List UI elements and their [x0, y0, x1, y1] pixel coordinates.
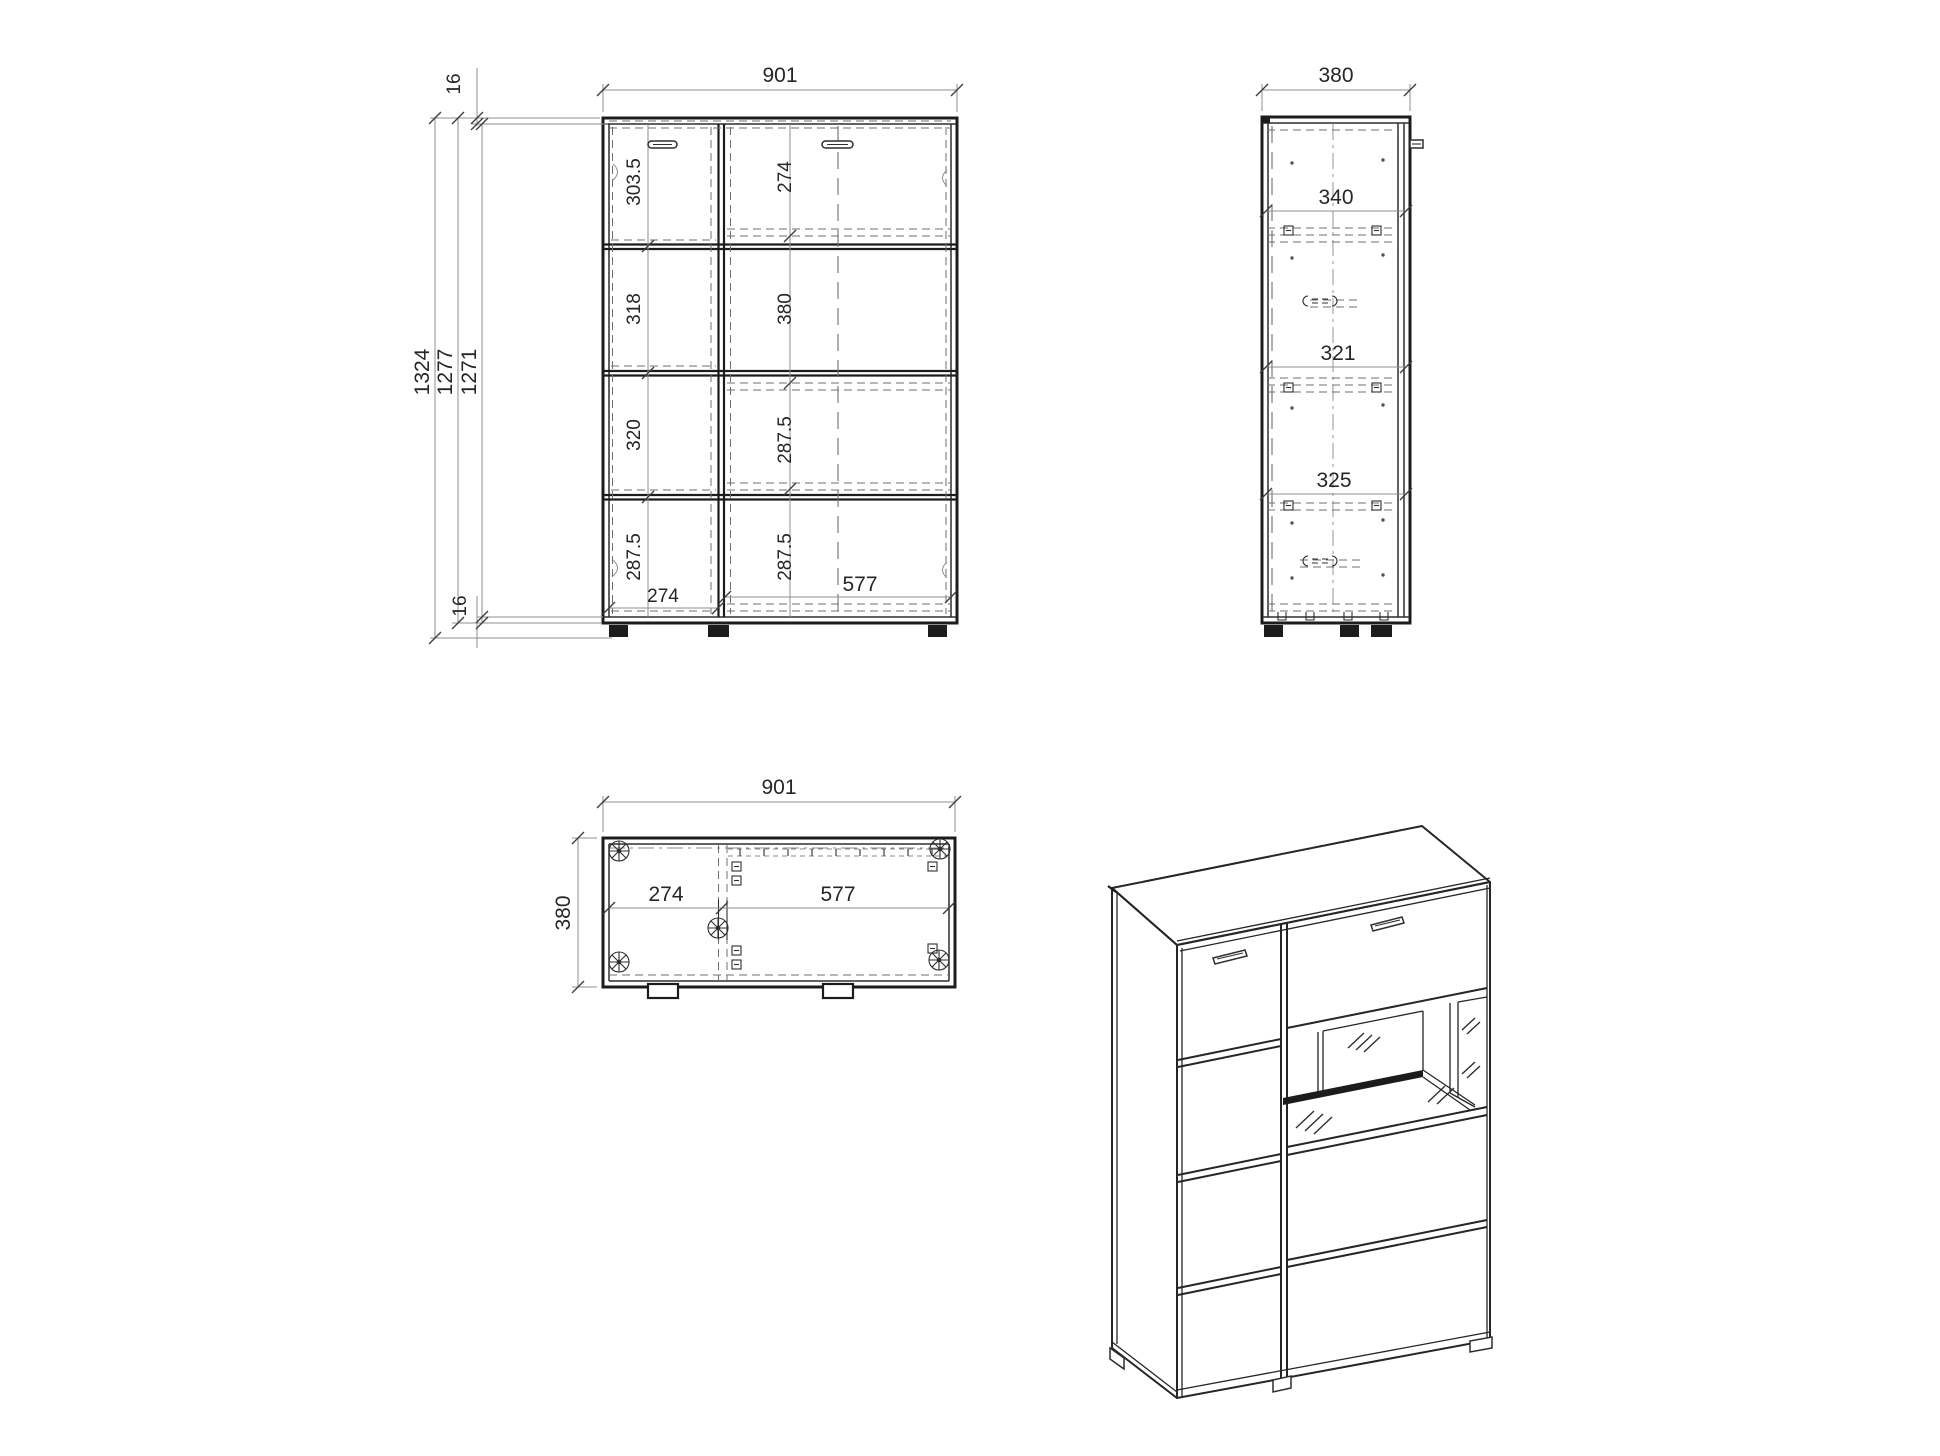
front-bottom-width-right: 577 — [842, 573, 877, 596]
front-right-section-4: 287.5 — [775, 533, 796, 581]
top-cabinet-outline — [603, 838, 955, 987]
front-width-dim-label: 901 — [762, 64, 797, 87]
drawing-page: 901 16 1324 1277 1271 16 303.5 318 320 2… — [0, 0, 1940, 1456]
side-section-1: 340 — [1318, 186, 1353, 209]
top-depth-dim-label: 380 — [552, 895, 575, 930]
top-view-drawing: 901 380 274 577 — [552, 776, 961, 998]
technical-drawing-canvas: 901 16 1324 1277 1271 16 303.5 318 320 2… — [0, 0, 1940, 1456]
front-top-thickness-label: 16 — [444, 73, 465, 94]
side-feet — [1264, 625, 1392, 637]
front-left-section-1: 303.5 — [624, 158, 645, 206]
side-door-handle — [1410, 140, 1423, 148]
side-section-3: 325 — [1316, 469, 1351, 492]
side-view-drawing: 380 340 321 325 — [1256, 64, 1423, 637]
iso-door-divider — [1281, 923, 1287, 1379]
front-right-section-2: 380 — [775, 293, 796, 325]
front-bottom-width-left: 274 — [647, 586, 679, 607]
top-width-dim-label: 901 — [761, 776, 796, 799]
isometric-view-drawing — [1108, 826, 1492, 1398]
top-inner-width-left: 274 — [648, 883, 683, 906]
front-left-section-4: 287.5 — [624, 533, 645, 581]
front-height-overall-label: 1324 — [411, 348, 434, 395]
side-depth-dim-label: 380 — [1318, 64, 1353, 87]
front-left-section-3: 320 — [624, 419, 645, 451]
iso-edge-details — [1108, 878, 1490, 1396]
iso-left-door-handle — [1213, 950, 1247, 964]
front-view-drawing: 901 16 1324 1277 1271 16 303.5 318 320 2… — [411, 64, 963, 648]
iso-right-door-handle — [1371, 917, 1404, 931]
side-section-2: 321 — [1320, 342, 1355, 365]
front-feet — [609, 625, 947, 637]
front-right-section-3: 287.5 — [775, 416, 796, 464]
front-left-section-2: 318 — [624, 293, 645, 325]
iso-right-door-lines — [1287, 988, 1487, 1267]
front-left-door-handle — [648, 141, 677, 148]
top-inner-width-right: 577 — [820, 883, 855, 906]
front-bottom-thickness-label: 16 — [450, 595, 471, 616]
iso-top-face — [1112, 826, 1490, 945]
iso-left-face — [1112, 888, 1177, 1398]
front-right-door-handle — [822, 141, 853, 148]
front-height-body-label: 1277 — [434, 349, 457, 396]
front-height-inner-label: 1271 — [458, 349, 481, 396]
front-right-section-1: 274 — [775, 161, 796, 193]
iso-left-door-lines — [1178, 1039, 1281, 1295]
iso-recess-shelf-edge — [1283, 1070, 1423, 1105]
